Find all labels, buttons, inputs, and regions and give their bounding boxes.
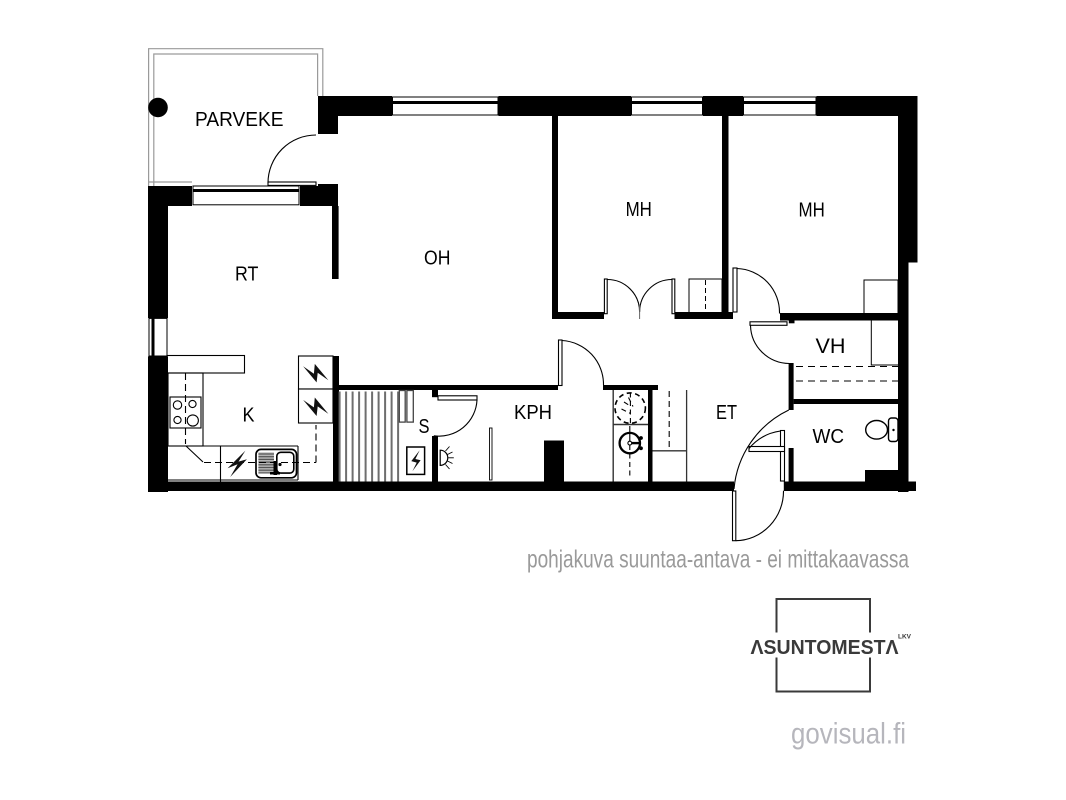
svg-text:LKV: LKV: [898, 634, 912, 641]
svg-text:pohjakuva suuntaa-antava - ei: pohjakuva suuntaa-antava - ei mittakaava…: [527, 546, 909, 574]
svg-text:MH: MH: [626, 199, 652, 221]
svg-text:PARVEKE: PARVEKE: [195, 109, 284, 131]
svg-text:WC: WC: [813, 426, 845, 448]
svg-text:VH: VH: [816, 335, 846, 358]
svg-text:K: K: [243, 405, 256, 427]
svg-text:S: S: [419, 416, 430, 438]
svg-text:govisual.fi: govisual.fi: [791, 718, 906, 751]
svg-text:MH: MH: [799, 200, 825, 222]
svg-text:RT: RT: [235, 264, 258, 286]
svg-text:OH: OH: [424, 248, 450, 270]
svg-text:ΛSUNTOMESTΛ: ΛSUNTOMESTΛ: [751, 636, 899, 659]
svg-text:KPH: KPH: [514, 402, 552, 424]
svg-text:ET: ET: [716, 402, 737, 424]
